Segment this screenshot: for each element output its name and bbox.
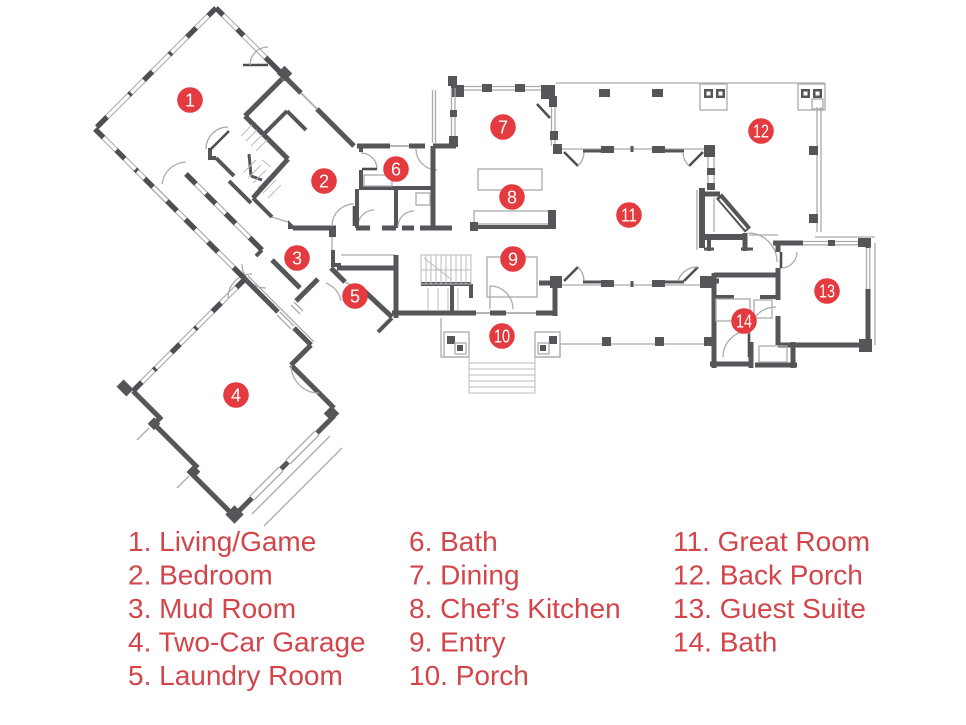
svg-text:1. Living/Game: 1. Living/Game [128, 526, 316, 557]
svg-text:5. Laundry Room: 5. Laundry Room [128, 660, 343, 691]
svg-text:8. Chef’s Kitchen: 8. Chef’s Kitchen [409, 593, 621, 624]
svg-text:6. Bath: 6. Bath [409, 526, 498, 557]
svg-text:2. Bedroom: 2. Bedroom [128, 560, 273, 591]
svg-text:11: 11 [621, 206, 637, 226]
svg-text:14. Bath: 14. Bath [673, 627, 777, 658]
svg-text:8: 8 [507, 188, 517, 208]
svg-text:4. Two-Car Garage: 4. Two-Car Garage [128, 627, 366, 658]
svg-text:1: 1 [185, 91, 195, 111]
svg-text:7: 7 [498, 118, 508, 138]
svg-text:12: 12 [753, 122, 769, 142]
svg-text:13. Guest Suite: 13. Guest Suite [673, 593, 866, 624]
svg-text:12. Back Porch: 12. Back Porch [673, 560, 863, 591]
svg-text:3. Mud Room: 3. Mud Room [128, 593, 296, 624]
svg-text:3: 3 [292, 249, 302, 269]
svg-text:9: 9 [508, 250, 518, 270]
svg-text:10. Porch: 10. Porch [409, 660, 529, 691]
svg-text:13: 13 [819, 282, 835, 302]
svg-text:9. Entry: 9. Entry [409, 627, 505, 658]
svg-text:6: 6 [391, 160, 401, 180]
svg-text:4: 4 [231, 386, 241, 406]
svg-text:10: 10 [494, 327, 510, 347]
svg-text:2: 2 [319, 172, 329, 192]
svg-text:7. Dining: 7. Dining [409, 560, 520, 591]
svg-text:11. Great Room: 11. Great Room [673, 526, 870, 557]
svg-text:5: 5 [350, 287, 360, 307]
svg-text:14: 14 [736, 312, 752, 332]
